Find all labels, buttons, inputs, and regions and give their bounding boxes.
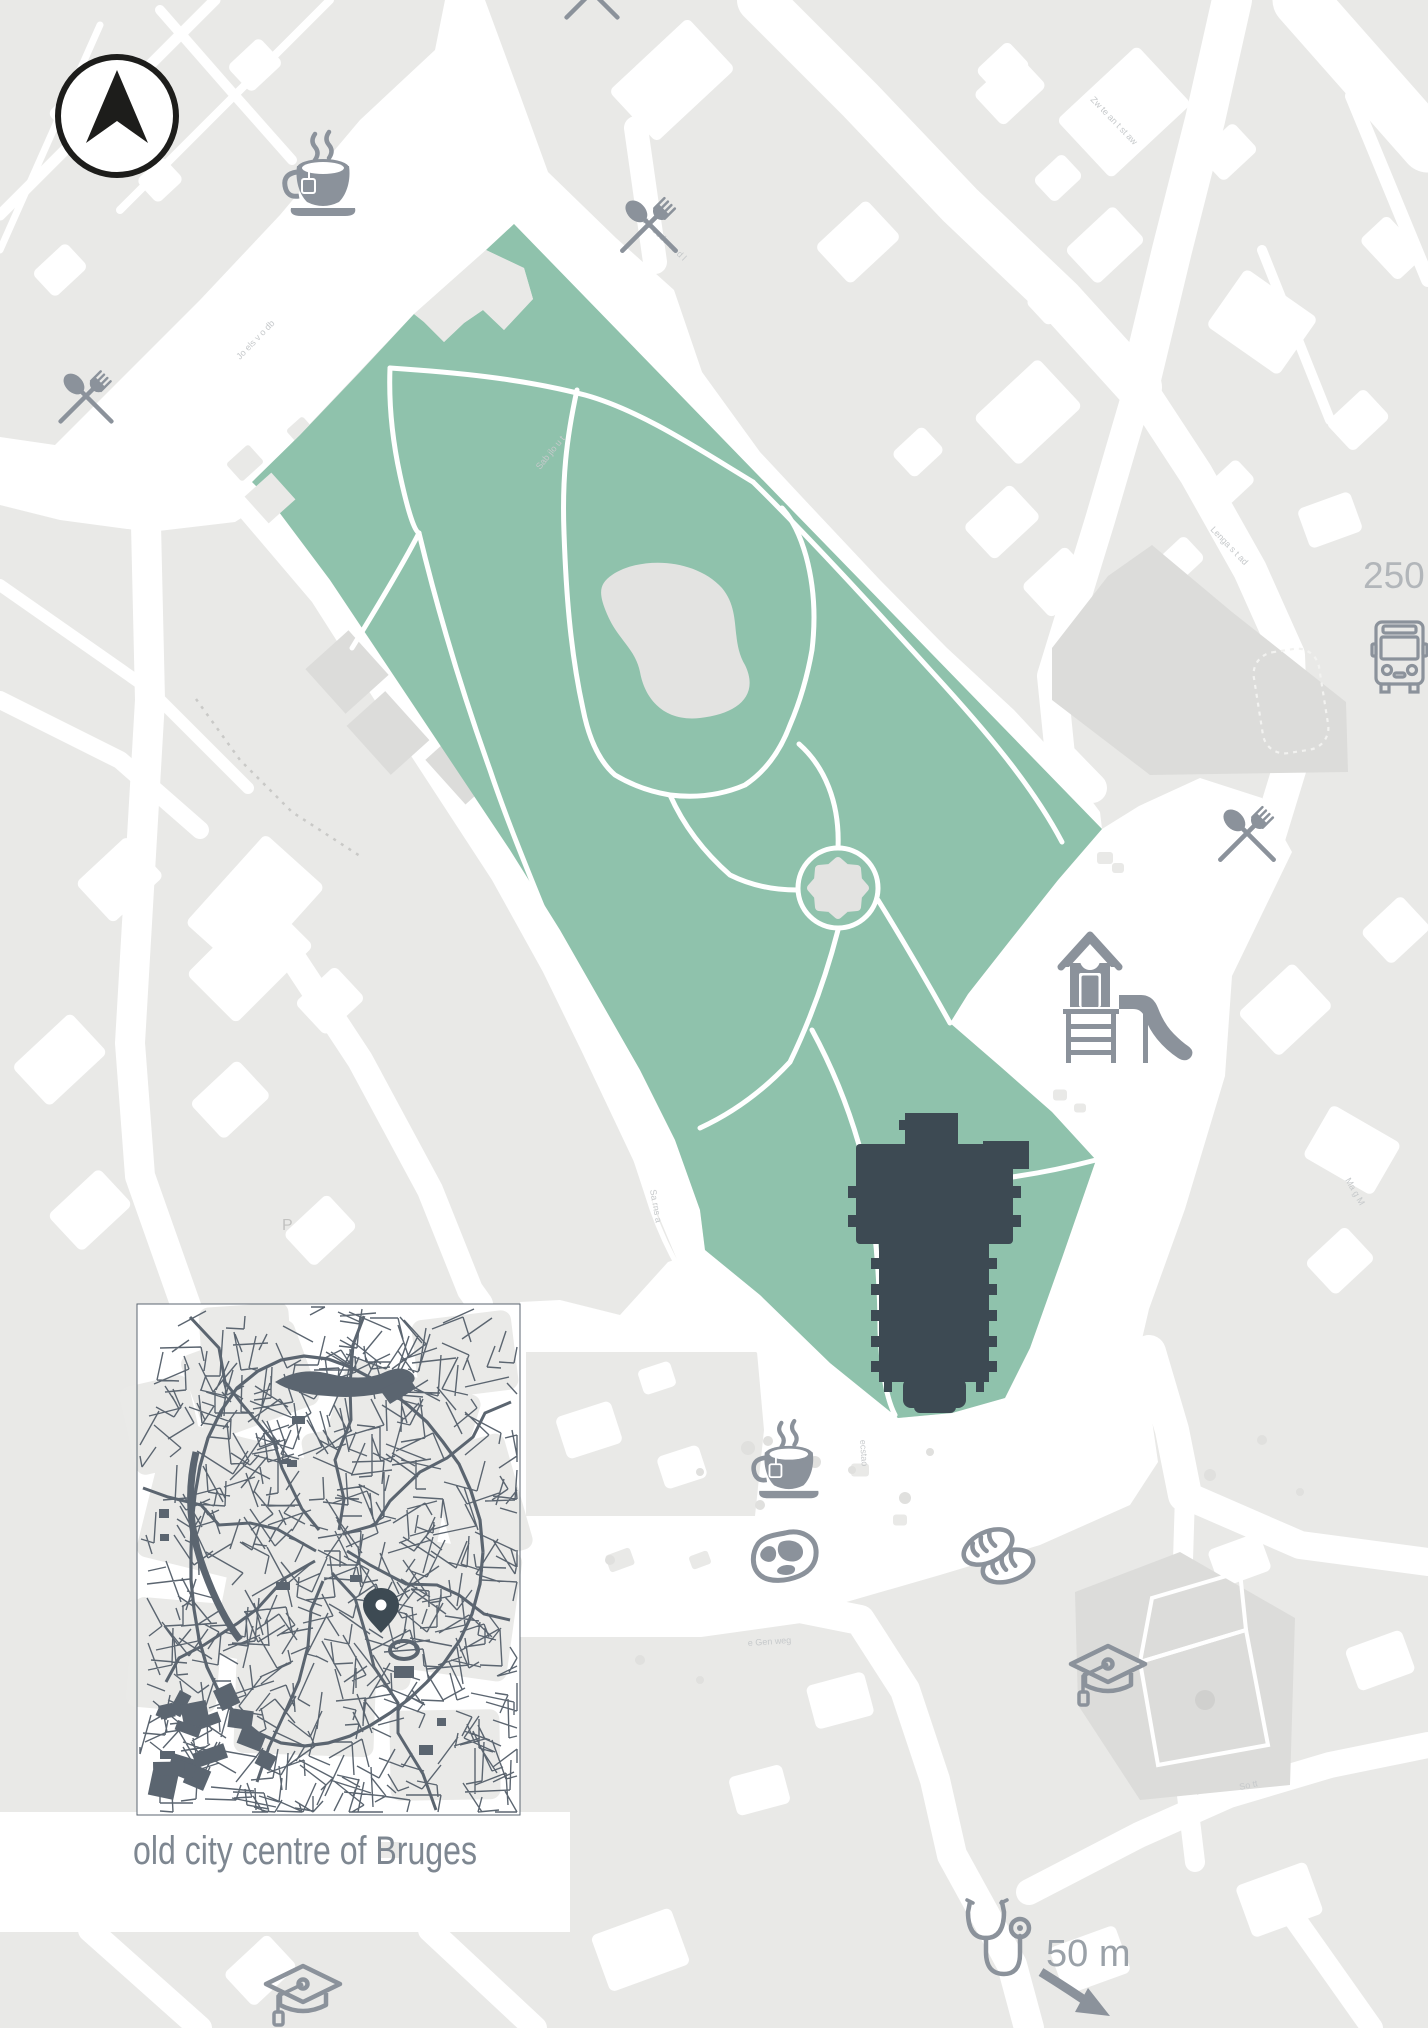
- svg-text:old city centre of Bruges: old city centre of Bruges: [133, 1829, 477, 1873]
- svg-text:250 m: 250 m: [1363, 555, 1428, 596]
- svg-text:50 m: 50 m: [1046, 1933, 1130, 1975]
- svg-text:ecstao: ecstao: [858, 1439, 870, 1466]
- svg-text:P: P: [282, 1217, 293, 1234]
